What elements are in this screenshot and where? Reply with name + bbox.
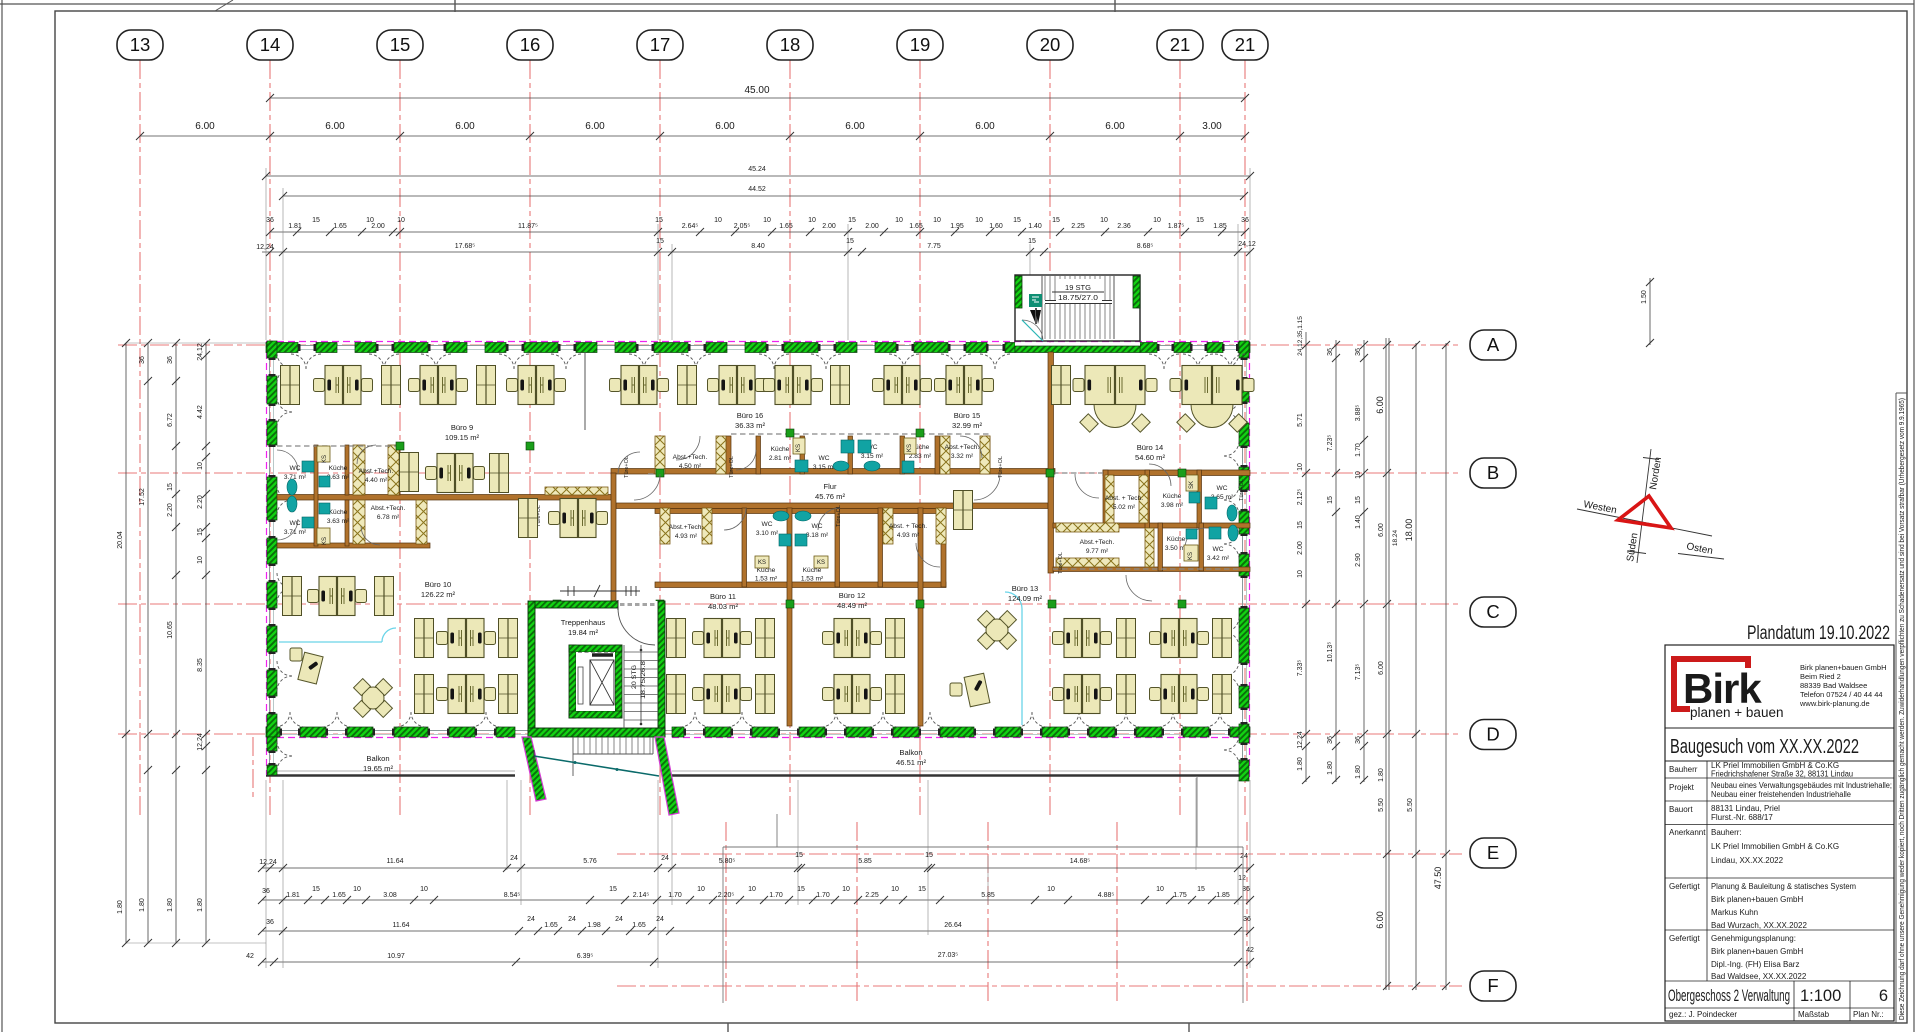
svg-text:Türe+OL: Türe+OL bbox=[836, 505, 842, 527]
svg-text:Baugesuch vom XX.XX.2022: Baugesuch vom XX.XX.2022 bbox=[1670, 736, 1859, 758]
svg-text:15: 15 bbox=[1028, 238, 1036, 245]
svg-text:10: 10 bbox=[697, 886, 705, 893]
svg-text:4.50 m²: 4.50 m² bbox=[679, 463, 702, 470]
svg-text:WC: WC bbox=[1217, 485, 1228, 492]
svg-text:1.53 m²: 1.53 m² bbox=[755, 576, 778, 583]
svg-text:45.24: 45.24 bbox=[748, 166, 766, 173]
svg-text:19.65 m²: 19.65 m² bbox=[363, 764, 393, 773]
svg-text:126.22 m²: 126.22 m² bbox=[421, 590, 456, 599]
svg-text:Beim Ried 2: Beim Ried 2 bbox=[1800, 672, 1841, 681]
svg-text:15: 15 bbox=[846, 238, 854, 245]
svg-text:WC: WC bbox=[762, 521, 773, 528]
svg-text:6.00: 6.00 bbox=[715, 121, 735, 132]
svg-text:2.81 m²: 2.81 m² bbox=[769, 455, 792, 462]
svg-text:6.00: 6.00 bbox=[1378, 661, 1385, 675]
svg-text:Flur: Flur bbox=[823, 482, 837, 491]
svg-text:8.68⁵: 8.68⁵ bbox=[1137, 243, 1154, 250]
svg-text:Abst.+Tech.: Abst.+Tech. bbox=[1080, 539, 1115, 546]
svg-text:2.00: 2.00 bbox=[371, 223, 385, 230]
svg-text:10: 10 bbox=[1156, 886, 1164, 893]
svg-text:5.50: 5.50 bbox=[1378, 798, 1385, 812]
svg-text:Projekt: Projekt bbox=[1669, 783, 1695, 792]
svg-text:Abst.+Tech.: Abst.+Tech. bbox=[359, 468, 394, 475]
svg-text:Büro 15: Büro 15 bbox=[954, 411, 981, 420]
svg-text:36: 36 bbox=[266, 217, 274, 224]
svg-text:24: 24 bbox=[661, 855, 669, 862]
svg-text:24: 24 bbox=[527, 916, 535, 923]
svg-text:6.00: 6.00 bbox=[195, 121, 215, 132]
svg-text:1.80: 1.80 bbox=[1355, 765, 1362, 779]
svg-text:24,12: 24,12 bbox=[197, 343, 204, 361]
svg-text:Büro 16: Büro 16 bbox=[737, 411, 764, 420]
svg-text:27.03⁵: 27.03⁵ bbox=[938, 952, 959, 959]
svg-text:2.00: 2.00 bbox=[822, 223, 836, 230]
svg-text:Telefon 07524 / 40 44 44: Telefon 07524 / 40 44 44 bbox=[1800, 690, 1883, 699]
svg-text:1:100: 1:100 bbox=[1800, 987, 1841, 1005]
svg-text:3.71 m²: 3.71 m² bbox=[284, 474, 307, 481]
svg-text:Büro 13: Büro 13 bbox=[1012, 584, 1039, 593]
svg-text:21: 21 bbox=[1235, 34, 1256, 55]
svg-text:Abst. + Tech.: Abst. + Tech. bbox=[1105, 495, 1143, 502]
svg-text:1.95: 1.95 bbox=[950, 223, 964, 230]
svg-text:A: A bbox=[1487, 334, 1500, 355]
svg-text:46.51 m²: 46.51 m² bbox=[896, 758, 926, 767]
svg-text:WC: WC bbox=[290, 465, 301, 472]
svg-text:4.93 m²: 4.93 m² bbox=[897, 532, 920, 539]
svg-text:B: B bbox=[1487, 462, 1499, 483]
svg-text:6.00: 6.00 bbox=[845, 121, 865, 132]
svg-text:8.54⁵: 8.54⁵ bbox=[504, 892, 521, 899]
svg-text:Abst.+Tech.: Abst.+Tech. bbox=[945, 444, 980, 451]
svg-text:11.87⁵: 11.87⁵ bbox=[518, 223, 538, 230]
svg-text:1.81: 1.81 bbox=[288, 223, 302, 230]
svg-text:KS: KS bbox=[1188, 552, 1194, 560]
svg-text:19 STG: 19 STG bbox=[1065, 285, 1091, 292]
svg-text:36: 36 bbox=[262, 888, 270, 895]
svg-text:10: 10 bbox=[808, 217, 816, 224]
svg-text:54.60 m²: 54.60 m² bbox=[1135, 453, 1165, 462]
svg-text:1.65: 1.65 bbox=[544, 922, 558, 929]
svg-text:1.75: 1.75 bbox=[1173, 892, 1187, 899]
svg-text:Bauherr:: Bauherr: bbox=[1711, 828, 1742, 837]
svg-text:15: 15 bbox=[655, 217, 663, 224]
svg-text:1.65: 1.65 bbox=[333, 223, 347, 230]
svg-text:Diese Zeichnung darf ohne unse: Diese Zeichnung darf ohne unsere Genehmi… bbox=[1899, 398, 1906, 1020]
svg-text:3.15 m²: 3.15 m² bbox=[861, 453, 884, 460]
svg-text:Türe+OL: Türe+OL bbox=[1058, 552, 1064, 574]
svg-text:6.39⁵: 6.39⁵ bbox=[577, 953, 594, 960]
svg-text:WC: WC bbox=[819, 455, 830, 462]
svg-text:5.76: 5.76 bbox=[583, 858, 597, 865]
svg-text:1.60: 1.60 bbox=[989, 223, 1003, 230]
svg-text:3.63 m²: 3.63 m² bbox=[327, 518, 350, 525]
svg-text:KS: KS bbox=[758, 560, 766, 566]
svg-text:48.49 m²: 48.49 m² bbox=[837, 601, 867, 610]
svg-text:1.70: 1.70 bbox=[769, 892, 783, 899]
svg-text:Abst.+Tech.: Abst.+Tech. bbox=[673, 454, 708, 461]
svg-text:10: 10 bbox=[763, 217, 771, 224]
svg-text:1.50: 1.50 bbox=[1641, 290, 1648, 304]
svg-text:Bauherr: Bauherr bbox=[1669, 765, 1698, 774]
svg-text:2.00: 2.00 bbox=[865, 223, 879, 230]
svg-text:15: 15 bbox=[609, 886, 617, 893]
svg-text:10: 10 bbox=[397, 217, 405, 224]
svg-text:19.84 m²: 19.84 m² bbox=[568, 628, 598, 637]
svg-text:WC: WC bbox=[812, 523, 823, 530]
svg-text:Büro 11: Büro 11 bbox=[710, 592, 736, 601]
svg-text:Büro 12: Büro 12 bbox=[839, 591, 866, 600]
svg-text:10: 10 bbox=[420, 886, 428, 893]
svg-text:Türe+OL: Türe+OL bbox=[729, 456, 735, 478]
svg-text:10.65: 10.65 bbox=[167, 621, 174, 639]
svg-text:KS: KS bbox=[817, 560, 825, 566]
svg-text:1.65: 1.65 bbox=[779, 223, 793, 230]
svg-text:www.birk-planung.de: www.birk-planung.de bbox=[1799, 699, 1870, 708]
svg-text:42: 42 bbox=[1246, 947, 1254, 954]
svg-text:3.00: 3.00 bbox=[1202, 121, 1222, 132]
svg-text:24,12: 24,12 bbox=[1238, 241, 1256, 248]
svg-text:Türe+OL: Türe+OL bbox=[998, 456, 1004, 478]
svg-text:Küche: Küche bbox=[771, 446, 790, 453]
svg-text:10.13⁵: 10.13⁵ bbox=[1327, 642, 1334, 663]
svg-text:Bauort: Bauort bbox=[1669, 805, 1693, 814]
svg-text:1.80: 1.80 bbox=[197, 898, 204, 912]
svg-text:20: 20 bbox=[1040, 34, 1061, 55]
svg-text:17.52: 17.52 bbox=[139, 488, 146, 506]
svg-text:10: 10 bbox=[353, 886, 361, 893]
svg-text:3.32 m²: 3.32 m² bbox=[951, 453, 974, 460]
svg-text:18: 18 bbox=[780, 34, 801, 55]
svg-text:26.64: 26.64 bbox=[944, 922, 962, 929]
svg-text:15: 15 bbox=[656, 238, 664, 245]
svg-text:Friedrichshafener Straße 32, 8: Friedrichshafener Straße 32, 88131 Linda… bbox=[1711, 770, 1853, 779]
svg-text:Küche: Küche bbox=[329, 509, 348, 516]
svg-text:10.97: 10.97 bbox=[387, 953, 405, 960]
svg-text:2.36: 2.36 bbox=[1117, 223, 1131, 230]
svg-text:Norden: Norden bbox=[1648, 456, 1664, 490]
svg-text:12,24: 12,24 bbox=[1297, 731, 1304, 749]
svg-text:4.42: 4.42 bbox=[197, 405, 204, 419]
svg-text:21: 21 bbox=[1170, 34, 1191, 55]
svg-text:Abst.+Tech.: Abst.+Tech. bbox=[371, 505, 406, 512]
svg-text:11.64: 11.64 bbox=[387, 858, 404, 865]
svg-text:1.65: 1.65 bbox=[332, 892, 346, 899]
svg-text:15: 15 bbox=[312, 886, 320, 893]
svg-text:3.98 m²: 3.98 m² bbox=[1161, 502, 1184, 509]
svg-text:6.72: 6.72 bbox=[167, 413, 174, 427]
svg-text:1.65: 1.65 bbox=[909, 223, 923, 230]
svg-text:Büro 10: Büro 10 bbox=[425, 580, 452, 589]
svg-text:1.70: 1.70 bbox=[816, 892, 830, 899]
svg-text:3.10 m²: 3.10 m² bbox=[756, 530, 779, 537]
svg-text:10: 10 bbox=[1047, 886, 1055, 893]
svg-text:15: 15 bbox=[1196, 217, 1204, 224]
svg-text:48.03 m²: 48.03 m² bbox=[708, 602, 738, 611]
svg-text:6.00: 6.00 bbox=[1378, 523, 1385, 537]
svg-text:45.76 m²: 45.76 m² bbox=[815, 492, 845, 501]
svg-text:Balkon: Balkon bbox=[899, 748, 922, 757]
svg-text:Bad Wurzach, XX.XX.2022: Bad Wurzach, XX.XX.2022 bbox=[1711, 921, 1807, 930]
svg-text:E: E bbox=[1487, 842, 1499, 863]
svg-text:2.20⁵: 2.20⁵ bbox=[718, 892, 735, 899]
svg-text:8.35: 8.35 bbox=[197, 658, 204, 672]
svg-text:6.00: 6.00 bbox=[585, 121, 605, 132]
svg-text:Balkon: Balkon bbox=[366, 754, 389, 763]
svg-text:1.70: 1.70 bbox=[1355, 443, 1362, 457]
svg-text:15: 15 bbox=[167, 483, 174, 491]
svg-text:Plandatum 19.10.2022: Plandatum 19.10.2022 bbox=[1747, 623, 1890, 644]
svg-text:5.80⁵: 5.80⁵ bbox=[719, 858, 736, 865]
svg-text:1.87⁵: 1.87⁵ bbox=[1168, 223, 1185, 230]
svg-text:1.70: 1.70 bbox=[668, 892, 682, 899]
svg-text:20.04: 20.04 bbox=[117, 531, 124, 549]
svg-text:10: 10 bbox=[714, 217, 722, 224]
svg-text:15: 15 bbox=[1013, 217, 1021, 224]
svg-text:15: 15 bbox=[390, 34, 411, 55]
svg-text:planen + bauen: planen + bauen bbox=[1690, 705, 1783, 720]
svg-text:1.85: 1.85 bbox=[1213, 223, 1227, 230]
svg-text:36: 36 bbox=[167, 356, 174, 364]
svg-text:14.68⁵: 14.68⁵ bbox=[1070, 858, 1091, 865]
svg-text:2.12⁵: 2.12⁵ bbox=[1297, 489, 1304, 506]
svg-text:18.75/26.8: 18.75/26.8 bbox=[640, 661, 647, 699]
svg-text:LK Priel Immobilien GmbH & Co.: LK Priel Immobilien GmbH & Co.KG bbox=[1711, 842, 1839, 851]
svg-text:15: 15 bbox=[1327, 496, 1334, 504]
svg-text:Abst. + Tech.: Abst. + Tech. bbox=[889, 523, 927, 530]
svg-text:17: 17 bbox=[650, 34, 671, 55]
svg-text:D: D bbox=[1486, 724, 1499, 745]
svg-text:9.77 m²: 9.77 m² bbox=[1086, 548, 1109, 555]
svg-text:15: 15 bbox=[1052, 217, 1060, 224]
svg-text:Planung & Bauleitung & statisc: Planung & Bauleitung & statisches System bbox=[1711, 882, 1856, 891]
svg-text:Gefertigt: Gefertigt bbox=[1669, 882, 1700, 891]
svg-text:KS: KS bbox=[322, 455, 328, 463]
svg-text:10: 10 bbox=[197, 462, 204, 470]
svg-text:Treppenhaus: Treppenhaus bbox=[561, 618, 606, 627]
svg-text:2.25: 2.25 bbox=[1071, 223, 1085, 230]
svg-text:2.14⁵: 2.14⁵ bbox=[633, 892, 650, 899]
svg-text:3.42 m²: 3.42 m² bbox=[1207, 555, 1230, 562]
svg-text:Abst.+Tech.: Abst.+Tech. bbox=[669, 524, 704, 531]
svg-text:24,12,35,1.15: 24,12,35,1.15 bbox=[1297, 316, 1304, 356]
svg-text:2.25: 2.25 bbox=[865, 892, 879, 899]
svg-text:SK: SK bbox=[1189, 481, 1195, 489]
svg-text:24: 24 bbox=[1240, 853, 1248, 860]
svg-text:6.00: 6.00 bbox=[1375, 396, 1385, 414]
svg-text:Flurst.-Nr. 688/17: Flurst.-Nr. 688/17 bbox=[1711, 813, 1773, 822]
svg-text:10: 10 bbox=[891, 886, 899, 893]
svg-text:4.88⁵: 4.88⁵ bbox=[1098, 892, 1115, 899]
svg-text:18.00: 18.00 bbox=[1404, 519, 1414, 542]
svg-text:36: 36 bbox=[139, 356, 146, 364]
svg-text:Türe+OL: Türe+OL bbox=[624, 456, 630, 478]
svg-text:36.33 m²: 36.33 m² bbox=[735, 421, 765, 430]
svg-text:3.88⁵: 3.88⁵ bbox=[1355, 405, 1362, 422]
svg-text:12: 12 bbox=[1238, 875, 1246, 882]
svg-text:Süden: Süden bbox=[1625, 532, 1640, 562]
svg-text:15: 15 bbox=[1197, 886, 1205, 893]
svg-text:Birk planen+bauen GmbH: Birk planen+bauen GmbH bbox=[1800, 663, 1887, 672]
svg-text:32.99 m²: 32.99 m² bbox=[952, 421, 982, 430]
svg-text:Küche: Küche bbox=[1167, 536, 1186, 543]
svg-text:KS: KS bbox=[907, 444, 913, 452]
svg-text:12,24: 12,24 bbox=[259, 859, 277, 866]
svg-text:3.15 m²: 3.15 m² bbox=[813, 464, 836, 471]
svg-text:24: 24 bbox=[615, 916, 623, 923]
svg-text:4.93 m²: 4.93 m² bbox=[675, 533, 698, 540]
svg-text:6.00: 6.00 bbox=[455, 121, 475, 132]
svg-text:Neubau einer freistehenden Ind: Neubau einer freistehenden Industriehall… bbox=[1711, 790, 1852, 799]
svg-text:Obergeschoss 2 Verwaltung: Obergeschoss 2 Verwaltung bbox=[1668, 987, 1790, 1005]
svg-text:KS: KS bbox=[796, 444, 802, 452]
svg-text:1.40: 1.40 bbox=[1355, 515, 1362, 529]
svg-text:14: 14 bbox=[260, 34, 281, 55]
svg-text:Neubau eines Verwaltungsgebäud: Neubau eines Verwaltungsgebäudes mit Ind… bbox=[1711, 781, 1892, 790]
svg-text:10: 10 bbox=[975, 217, 983, 224]
svg-text:Büro 9: Büro 9 bbox=[451, 423, 473, 432]
svg-text:7.23⁵: 7.23⁵ bbox=[1327, 435, 1334, 452]
svg-text:36: 36 bbox=[1355, 736, 1362, 744]
svg-text:36: 36 bbox=[1243, 916, 1251, 923]
svg-text:1.98: 1.98 bbox=[587, 922, 601, 929]
svg-text:6: 6 bbox=[1879, 987, 1888, 1005]
svg-text:1.80: 1.80 bbox=[1378, 768, 1385, 782]
svg-text:36: 36 bbox=[1241, 217, 1249, 224]
svg-text:15: 15 bbox=[797, 886, 805, 893]
svg-text:1.40: 1.40 bbox=[1028, 223, 1042, 230]
svg-text:12,24: 12,24 bbox=[256, 244, 274, 251]
svg-text:19: 19 bbox=[910, 34, 931, 55]
svg-text:Maßstab: Maßstab bbox=[1798, 1010, 1830, 1019]
svg-text:24: 24 bbox=[656, 916, 664, 923]
svg-text:15: 15 bbox=[795, 852, 803, 859]
svg-text:Küche: Küche bbox=[1163, 493, 1182, 500]
svg-text:10: 10 bbox=[1153, 217, 1161, 224]
svg-text:36: 36 bbox=[1327, 736, 1334, 744]
svg-text:11.64: 11.64 bbox=[393, 922, 410, 929]
svg-text:5.50: 5.50 bbox=[1407, 798, 1414, 812]
svg-text:Dipl.-Ing. (FH) Elisa Barz: Dipl.-Ing. (FH) Elisa Barz bbox=[1711, 960, 1799, 969]
svg-text:1.80: 1.80 bbox=[139, 898, 146, 912]
svg-text:F: F bbox=[1487, 975, 1498, 996]
svg-text:15: 15 bbox=[312, 217, 320, 224]
svg-text:88339 Bad Waldsee: 88339 Bad Waldsee bbox=[1800, 681, 1867, 690]
svg-text:1.80: 1.80 bbox=[167, 898, 174, 912]
svg-text:10: 10 bbox=[748, 886, 756, 893]
svg-text:Birk planen+bauen GmbH: Birk planen+bauen GmbH bbox=[1711, 947, 1804, 956]
svg-text:20 STG: 20 STG bbox=[631, 665, 638, 689]
svg-text:7.75: 7.75 bbox=[927, 243, 941, 250]
svg-text:18.24: 18.24 bbox=[1392, 529, 1399, 546]
svg-text:44.52: 44.52 bbox=[748, 186, 766, 193]
svg-text:124.09 m²: 124.09 m² bbox=[1008, 594, 1043, 603]
svg-text:8.40: 8.40 bbox=[751, 243, 765, 250]
svg-text:1.53 m²: 1.53 m² bbox=[801, 576, 824, 583]
svg-text:6.00: 6.00 bbox=[1105, 121, 1125, 132]
svg-text:6.00: 6.00 bbox=[325, 121, 345, 132]
svg-text:5.02 m²: 5.02 m² bbox=[1113, 504, 1136, 511]
svg-text:Küche: Küche bbox=[329, 465, 348, 472]
svg-text:36: 36 bbox=[1355, 348, 1362, 356]
svg-text:WC: WC bbox=[1213, 546, 1224, 553]
svg-text:Genehmigungsplanung:: Genehmigungsplanung: bbox=[1711, 934, 1796, 943]
svg-text:15: 15 bbox=[1297, 521, 1304, 529]
svg-text:Birk planen+bauen GmbH: Birk planen+bauen GmbH bbox=[1711, 895, 1804, 904]
svg-text:Markus Kuhn: Markus Kuhn bbox=[1711, 908, 1758, 917]
svg-text:Gefertigt: Gefertigt bbox=[1669, 934, 1700, 943]
svg-text:1.65: 1.65 bbox=[632, 922, 646, 929]
svg-text:gez.: J. Poindecker: gez.: J. Poindecker bbox=[1669, 1010, 1737, 1019]
svg-text:3.18 m²: 3.18 m² bbox=[806, 532, 829, 539]
svg-text:10: 10 bbox=[933, 217, 941, 224]
svg-text:Bad Waldsee, XX.XX.2022: Bad Waldsee, XX.XX.2022 bbox=[1711, 972, 1807, 981]
svg-text:15: 15 bbox=[1355, 496, 1362, 504]
svg-text:10: 10 bbox=[842, 886, 850, 893]
svg-text:16: 16 bbox=[520, 34, 541, 55]
svg-text:10: 10 bbox=[1297, 463, 1304, 471]
svg-text:42: 42 bbox=[246, 953, 254, 960]
svg-text:Türe+OL: Türe+OL bbox=[1239, 479, 1245, 501]
svg-text:6.78 m²: 6.78 m² bbox=[377, 514, 400, 521]
svg-text:3.71 m²: 3.71 m² bbox=[284, 529, 307, 536]
svg-text:24: 24 bbox=[510, 855, 518, 862]
svg-text:15: 15 bbox=[197, 528, 204, 536]
svg-text:15: 15 bbox=[848, 217, 856, 224]
svg-text:1.85: 1.85 bbox=[1216, 892, 1230, 899]
svg-text:Anerkannt: Anerkannt bbox=[1669, 828, 1706, 837]
svg-text:17.68⁵: 17.68⁵ bbox=[455, 243, 476, 250]
svg-text:C: C bbox=[1486, 601, 1499, 622]
svg-text:18.75/27.0: 18.75/27.0 bbox=[1058, 295, 1098, 302]
svg-text:1.81: 1.81 bbox=[286, 892, 300, 899]
svg-text:36: 36 bbox=[1327, 348, 1334, 356]
svg-text:15: 15 bbox=[925, 852, 933, 859]
svg-text:10: 10 bbox=[895, 217, 903, 224]
svg-text:24: 24 bbox=[568, 916, 576, 923]
svg-text:2.00: 2.00 bbox=[1297, 541, 1304, 555]
svg-text:1.80: 1.80 bbox=[117, 900, 124, 914]
svg-text:10: 10 bbox=[197, 556, 204, 564]
svg-text:5.85: 5.85 bbox=[981, 892, 995, 899]
svg-text:4.40 m²: 4.40 m² bbox=[365, 477, 388, 484]
svg-text:13: 13 bbox=[130, 34, 151, 55]
svg-text:Plan Nr.:: Plan Nr.: bbox=[1853, 1010, 1884, 1019]
svg-text:109.15 m²: 109.15 m² bbox=[445, 433, 480, 442]
svg-text:3.08: 3.08 bbox=[383, 892, 397, 899]
svg-text:KS: KS bbox=[322, 537, 328, 545]
svg-text:45.00: 45.00 bbox=[744, 85, 769, 96]
svg-text:2.20: 2.20 bbox=[197, 495, 204, 509]
svg-text:10: 10 bbox=[1297, 570, 1304, 578]
svg-text:2.05⁵: 2.05⁵ bbox=[734, 223, 751, 230]
svg-text:2.90: 2.90 bbox=[1355, 553, 1362, 567]
svg-text:5.85: 5.85 bbox=[858, 858, 872, 865]
svg-text:10: 10 bbox=[1100, 217, 1108, 224]
svg-text:2.64⁵: 2.64⁵ bbox=[682, 223, 699, 230]
svg-text:Büro 14: Büro 14 bbox=[1137, 443, 1164, 452]
svg-text:12,24: 12,24 bbox=[197, 733, 204, 751]
svg-text:Lindau, XX.XX.2022: Lindau, XX.XX.2022 bbox=[1711, 856, 1784, 865]
svg-text:1.80: 1.80 bbox=[1327, 761, 1334, 775]
svg-text:36: 36 bbox=[266, 919, 274, 926]
svg-text:2.20: 2.20 bbox=[167, 503, 174, 517]
svg-text:6.00: 6.00 bbox=[975, 121, 995, 132]
svg-text:5.71: 5.71 bbox=[1297, 413, 1304, 427]
svg-text:WC: WC bbox=[290, 520, 301, 527]
svg-text:1.80: 1.80 bbox=[1297, 757, 1304, 771]
svg-text:15: 15 bbox=[918, 886, 926, 893]
svg-text:10: 10 bbox=[1355, 471, 1362, 479]
